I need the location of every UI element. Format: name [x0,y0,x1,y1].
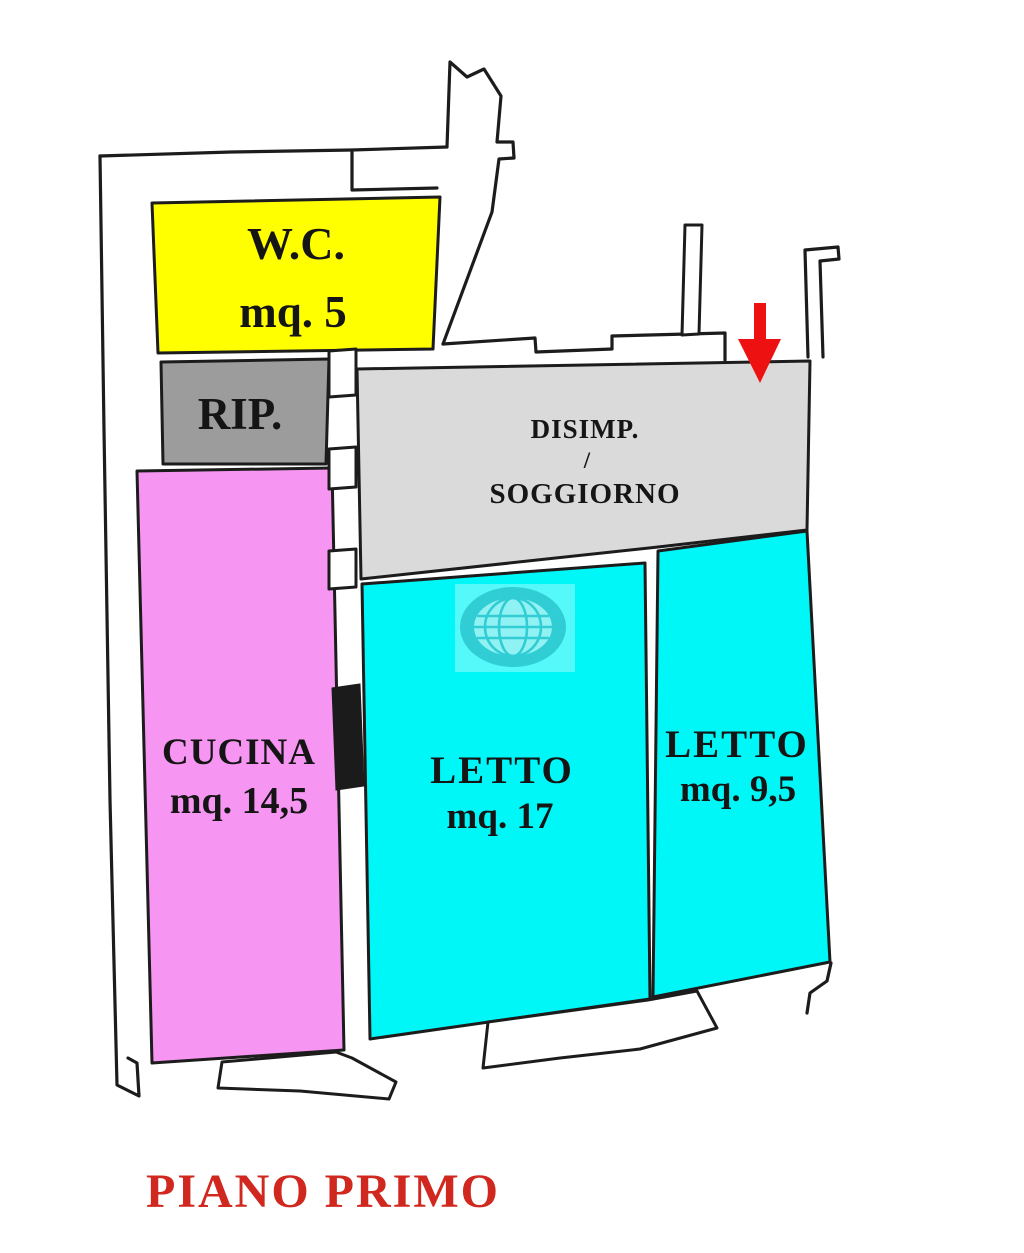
wall-top [100,147,447,156]
wall-stub-left-2 [329,447,356,489]
wall-left-outer [100,156,139,1096]
wall-stub-top-center [682,225,702,335]
floor-title: PIANO PRIMO [146,1165,500,1218]
floor-plan-page: W.C. mq. 5 RIP. DISIMP. / SOGGIORNO CUCI… [0,0,1024,1253]
label-wc: W.C. [247,218,345,269]
label-wc-area: mq. 5 [239,287,347,337]
wall-top-inner [352,152,437,190]
label-letto-grande-area: mq. 17 [447,796,554,837]
wall-stub-left-3 [329,549,356,589]
label-soggiorno: SOGGIORNO [489,478,680,510]
label-letto-piccolo-area: mq. 9,5 [680,769,796,810]
label-disimp: DISIMP. [531,414,640,444]
wall-bottom-right-hook [807,963,831,1013]
label-letto-piccolo: LETTO [665,723,809,766]
label-rip: RIP. [198,389,283,439]
wall-hook-top-right [805,247,839,357]
wall-above-disimpegno [443,333,725,360]
wall-bottom-left [218,1052,396,1099]
wall-stub-left-1 [329,349,356,397]
label-cucina: CUCINA [162,732,316,773]
label-letto-grande: LETTO [430,749,574,792]
globe-watermark-icon [455,584,575,672]
floor-plan-drawing: W.C. mq. 5 RIP. DISIMP. / SOGGIORNO CUCI… [0,0,1024,1253]
door-marker [332,684,364,790]
wall-protrusion-corridor [443,62,514,344]
label-cucina-area: mq. 14,5 [170,780,308,822]
label-disimp-separator: / [583,448,591,473]
